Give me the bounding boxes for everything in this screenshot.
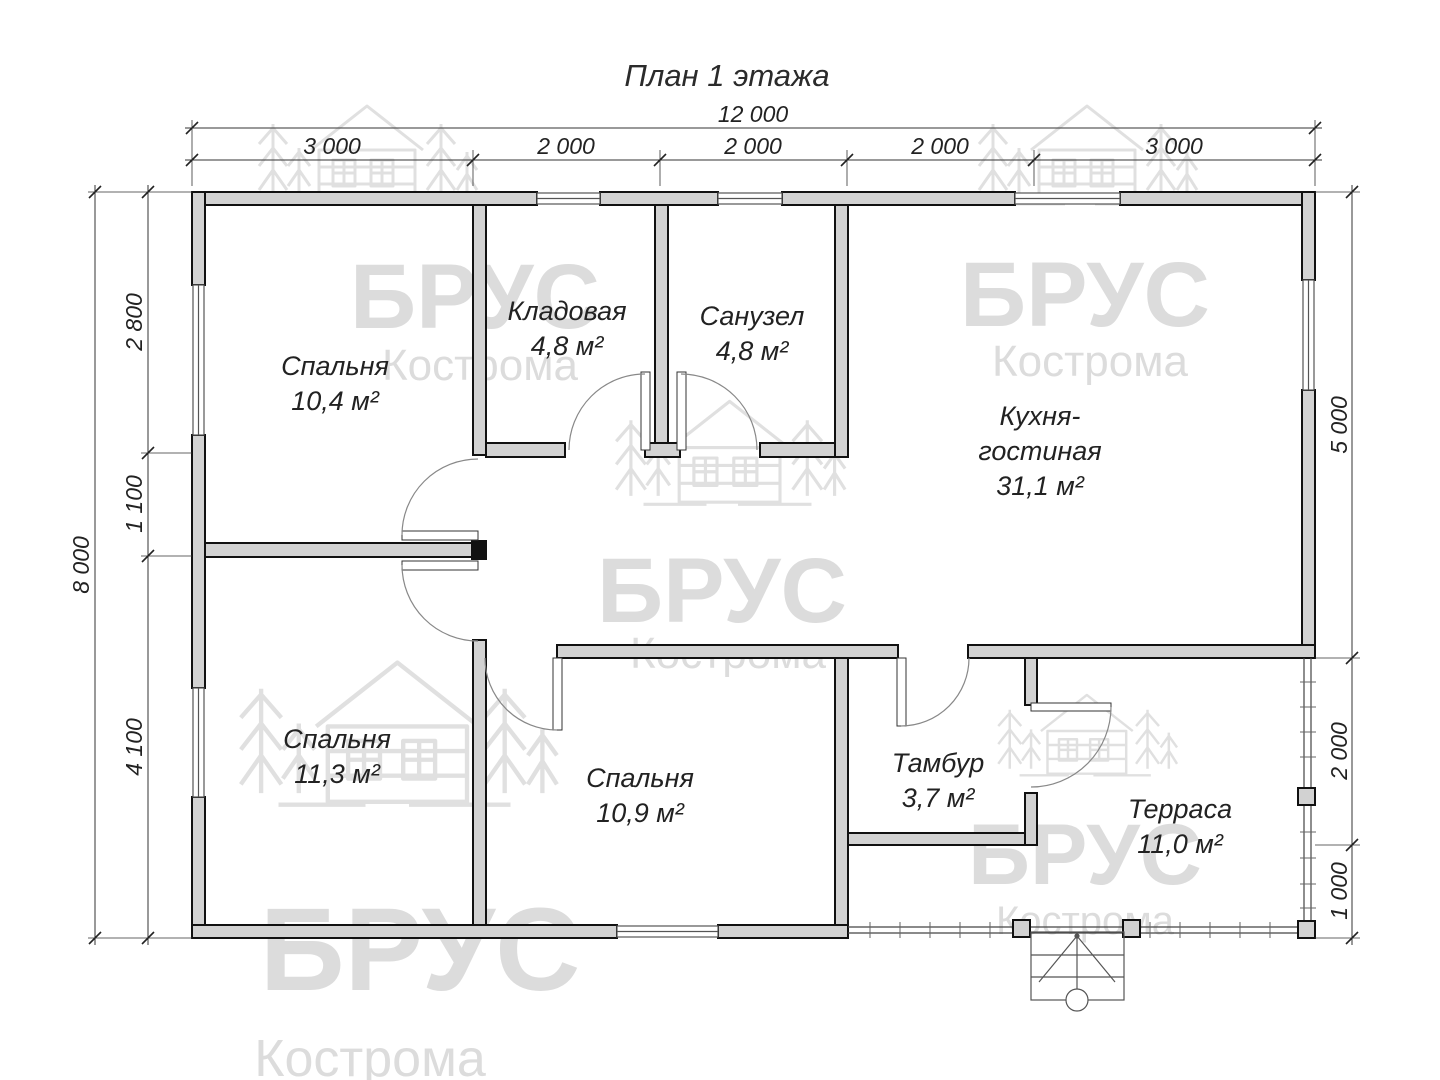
dim-right-seg1: 5 000 bbox=[1326, 396, 1352, 454]
room-label-kitchen: Кухня- гостиная 31,1 м² bbox=[978, 401, 1101, 501]
window-bedroom1-left bbox=[193, 285, 204, 435]
dim-left-seg1: 2 800 bbox=[121, 293, 147, 352]
room-name: Спальня bbox=[281, 351, 389, 381]
room-label-bedroom3: Спальня 10,9 м² bbox=[586, 763, 694, 828]
door-bedroom1 bbox=[402, 459, 478, 540]
room-name: Тамбур bbox=[892, 748, 985, 778]
watermark-brand: БРУС bbox=[597, 540, 847, 642]
window-bedroom2-left bbox=[193, 688, 204, 797]
room-label-bathroom: Санузел 4,8 м² bbox=[700, 301, 805, 366]
wall bbox=[192, 925, 617, 938]
wall-vestibule-right-upper bbox=[1025, 658, 1037, 705]
dim-total-width: 12 000 bbox=[718, 101, 789, 127]
floor-plan-drawing: БРУС Кострома БРУС Кострома БРУС Костром… bbox=[0, 0, 1440, 1080]
room-area: 10,4 м² bbox=[291, 386, 380, 416]
wall-vestibule-right-lower bbox=[1025, 793, 1037, 845]
wall-bedroom2-right bbox=[473, 640, 486, 925]
wall-bedroom3-right bbox=[835, 658, 848, 925]
room-name: Санузел bbox=[700, 301, 805, 331]
window-kitchen-top bbox=[1015, 193, 1120, 204]
wall bbox=[782, 192, 1015, 205]
watermark-city: Кострома bbox=[254, 1030, 486, 1080]
cabin-logo-icon bbox=[259, 106, 477, 204]
wall bbox=[1302, 390, 1315, 658]
door-bedroom2 bbox=[402, 561, 478, 641]
watermark-brand: БРУС bbox=[960, 244, 1210, 346]
dim-top-seg1: 3 000 bbox=[303, 133, 361, 159]
railing-post bbox=[1013, 920, 1030, 937]
watermark-brand: БРУС bbox=[260, 884, 581, 1016]
room-area: 4,8 м² bbox=[716, 336, 790, 366]
watermark-city: Кострома bbox=[992, 337, 1188, 386]
wall-storage-bottom bbox=[486, 443, 565, 457]
wall bbox=[192, 797, 205, 938]
dimension-right bbox=[1315, 185, 1360, 945]
room-area: 10,9 м² bbox=[596, 798, 685, 828]
dim-right-seg3: 1 000 bbox=[1326, 862, 1352, 920]
room-name: Кладовая bbox=[507, 296, 626, 326]
room-label-vestibule: Тамбур 3,7 м² bbox=[892, 748, 985, 813]
floor-plan-page: БРУС Кострома БРУС Кострома БРУС Костром… bbox=[0, 0, 1440, 1080]
room-area: 3,7 м² bbox=[902, 783, 976, 813]
room-name: Спальня bbox=[283, 724, 391, 754]
dim-left-seg3: 4 100 bbox=[121, 718, 147, 776]
door-storage bbox=[569, 372, 650, 450]
wall-bedrooms-divider bbox=[205, 543, 486, 557]
dim-top-seg4: 2 000 bbox=[910, 133, 969, 159]
wall bbox=[192, 435, 205, 688]
window-bathroom-top bbox=[718, 193, 782, 204]
wall-bedroom1-right bbox=[473, 205, 486, 455]
room-area: 11,3 м² bbox=[294, 759, 381, 789]
wall-bedroom3-top bbox=[557, 645, 898, 658]
dim-left-seg2: 1 100 bbox=[121, 475, 147, 533]
wall-kitchen-bottom bbox=[968, 645, 1315, 658]
wall bbox=[718, 925, 848, 938]
dim-top-seg5: 3 000 bbox=[1145, 133, 1203, 159]
wall-vestibule-bottom bbox=[848, 833, 1037, 845]
dim-right-seg2: 2 000 bbox=[1326, 722, 1352, 781]
room-name: Терраса bbox=[1128, 794, 1232, 824]
wall-storage-bathroom-divider bbox=[655, 205, 668, 450]
wall bbox=[192, 192, 205, 285]
wall-end-cap bbox=[472, 541, 486, 559]
room-name: Спальня bbox=[586, 763, 694, 793]
wall bbox=[1120, 192, 1315, 205]
window-storage-top bbox=[537, 193, 600, 204]
room-area: 4,8 м² bbox=[531, 331, 605, 361]
railing-post bbox=[1298, 921, 1315, 938]
wall bbox=[192, 192, 537, 205]
door-bedroom3 bbox=[485, 658, 562, 730]
door-vestibule-kitchen bbox=[897, 658, 969, 726]
wall bbox=[600, 192, 718, 205]
railing-post bbox=[1298, 788, 1315, 805]
room-area: 11,0 м² bbox=[1137, 829, 1224, 859]
dim-top-seg2: 2 000 bbox=[536, 133, 595, 159]
dim-top-seg3: 2 000 bbox=[723, 133, 782, 159]
room-area: 31,1 м² bbox=[996, 471, 1085, 501]
dim-total-height: 8 000 bbox=[68, 536, 94, 594]
room-name-line1: Кухня- bbox=[1000, 401, 1081, 431]
page-title: План 1 этажа bbox=[624, 58, 829, 93]
window-bedroom3-bottom bbox=[617, 926, 718, 937]
window-kitchen-right bbox=[1303, 280, 1314, 390]
wall-bathroom-kitchen-divider bbox=[835, 205, 848, 457]
entrance-stairs bbox=[1031, 932, 1124, 1011]
wall bbox=[1302, 192, 1315, 280]
room-label-bedroom1: Спальня 10,4 м² bbox=[281, 351, 389, 416]
room-name-line2: гостиная bbox=[978, 436, 1101, 466]
railing-post bbox=[1123, 920, 1140, 937]
